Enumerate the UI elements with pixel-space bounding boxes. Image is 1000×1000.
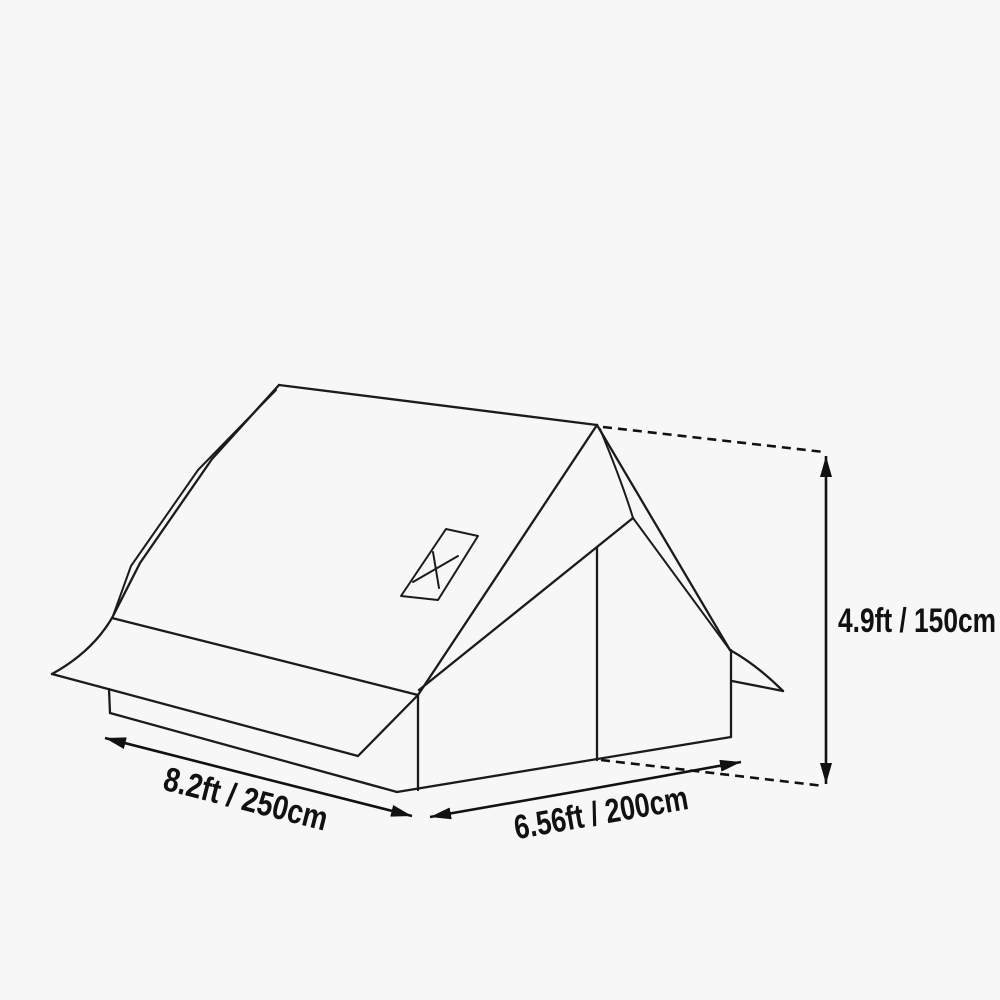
roof-right-edge-outer [597,425,730,650]
front-wall-top-edge [419,518,633,690]
x-mark-icon [413,552,458,588]
roof-ridge-line [279,385,597,425]
base-left-corner-edge [109,689,110,713]
height-dimension-label: 4.9ft / 150cm [838,602,996,640]
roof-left-edge-inner [113,390,276,616]
roof-eave-line [112,618,418,695]
depth-dimension-label: 6.56ft / 200cm [511,779,691,847]
depth-dimension: 6.56ft / 200cm [430,762,741,847]
base-bottom-left-edge [110,713,397,792]
tent-line-drawing-svg: 8.2ft / 250cm 6.56ft / 200cm 4.9ft / 150… [0,0,1000,1000]
roof-vent-window [401,529,478,600]
height-dimension: 4.9ft / 150cm [601,427,996,786]
roof-left-edge-outer [112,385,279,618]
awning-corner-edge [358,695,418,756]
vent-window-frame [401,529,478,600]
height-extension-line-top [603,427,824,452]
awning-front-edge [52,674,358,756]
tent-outline [52,385,783,792]
width-dimension-label: 8.2ft / 250cm [160,760,332,838]
product-dimension-diagram: 8.2ft / 250cm 6.56ft / 200cm 4.9ft / 150… [0,0,1000,1000]
awning-left-edge [52,618,112,674]
roof-front-gable-edge [418,425,597,695]
